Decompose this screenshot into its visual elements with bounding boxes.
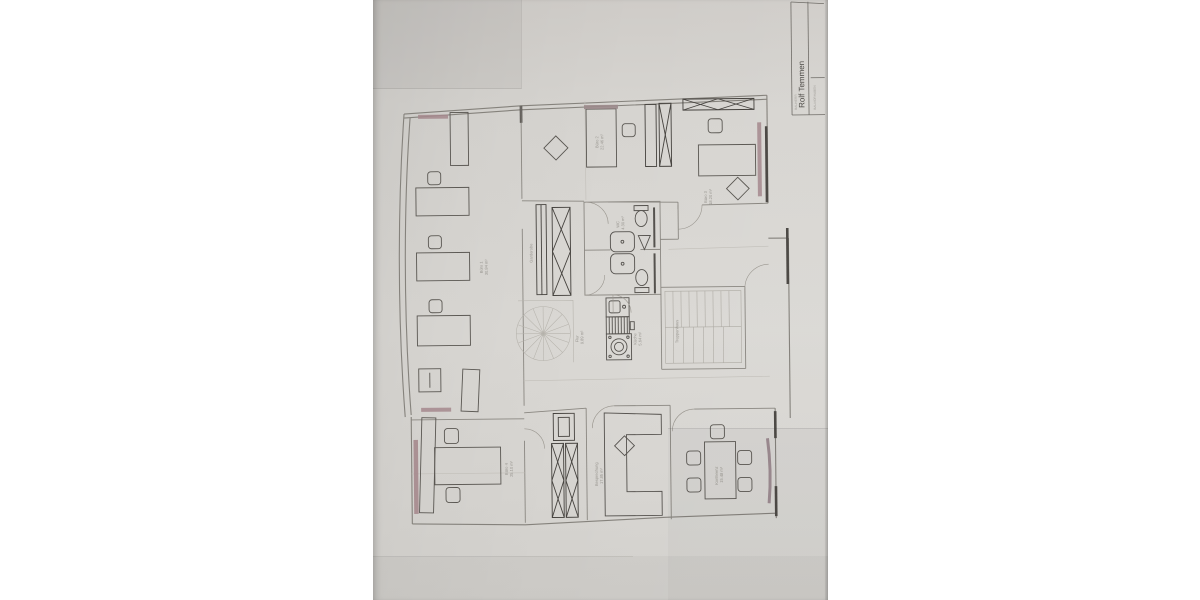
- room-label-kueche-area: 5.64 m²: [637, 331, 642, 345]
- sideboard-strip-conference: [767, 438, 770, 503]
- sideboard-strip-buero4: [413, 440, 418, 514]
- toilet-icon-bottom: [635, 269, 649, 292]
- urinal-icon: [638, 235, 650, 249]
- sofa-besprechung: [604, 412, 662, 516]
- outer-walls: [398, 95, 792, 526]
- room-label-garderobe: Garderobe: [528, 243, 533, 263]
- sideboard-strip-buero2: [584, 105, 618, 109]
- room-label-treppenhaus: Treppenhaus: [674, 320, 679, 343]
- door-arcs: [522, 200, 771, 449]
- conference-furniture: [686, 424, 752, 499]
- stove-icon: [606, 334, 631, 360]
- floor-plan-drawing: BAUHERR Rolf Temmen BAUVORHABEN: [373, 0, 828, 600]
- room-label-buero2-area: 22.46 m²: [599, 133, 604, 150]
- room-label-flur-area: 9.89 m²: [579, 330, 584, 344]
- sideboard-strip-buero1-top: [418, 115, 448, 119]
- sideboard-strip-buero1-bottom: [421, 408, 451, 412]
- spiral-stair: [516, 300, 574, 363]
- title-block-project-label: BAUVORHABEN: [813, 85, 817, 110]
- title-block-owner-name: Rolf Temmen: [797, 61, 806, 108]
- room-label-buero4-area: 25.10 m²: [509, 460, 514, 477]
- buero2-furniture: [543, 109, 635, 168]
- room-label-besprechung-area: 17.85 m²: [599, 468, 604, 485]
- photo-of-floor-plan: BAUHERR Rolf Temmen BAUVORHABEN: [0, 0, 1200, 600]
- wardrobe-units: [535, 98, 758, 517]
- room-label-wc-area: 4.30 m²: [620, 216, 625, 230]
- buero3-furniture: [698, 118, 756, 200]
- buero4-furniture: [419, 417, 502, 513]
- blueprint-paper: BAUHERR Rolf Temmen BAUVORHABEN: [373, 0, 828, 600]
- sideboard-strip-buero3: [757, 122, 762, 196]
- room-label-konferenz-area: 15.48 m²: [719, 466, 724, 483]
- thick-wall-segments: [521, 103, 790, 519]
- buero1-furniture: [415, 112, 480, 412]
- room-label-buero1-area: 30.84 m²: [484, 259, 489, 276]
- toilet-icon-top: [634, 205, 648, 226]
- room-label-buero3-area: 18.20 m²: [708, 188, 713, 205]
